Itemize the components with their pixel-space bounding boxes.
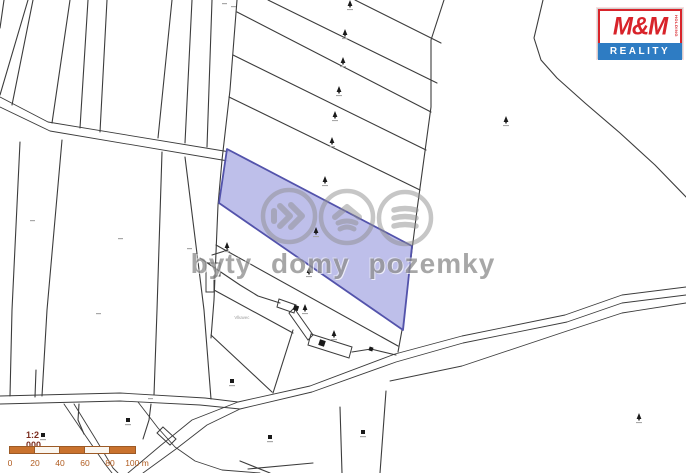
building-outline [277,299,296,313]
micro-parcel-label [229,385,235,386]
boundary-line [273,330,293,393]
micro-parcel-label [96,313,101,314]
road-edge [128,287,686,473]
survey-point-icon [126,418,130,422]
boundary-line [158,0,172,138]
scale-tick-label: 100 m [125,458,149,468]
logo-reality-text: REALITY [610,46,670,57]
mm-reality-logo: M&M HOLDING REALITY [597,8,683,59]
logo-holding-text: HOLDING [674,15,679,37]
map-screenshot: byty domy pozemky M&M HOLDING REALITY 1:… [0,0,686,473]
boundary-line [248,463,313,469]
house-icon [338,221,356,223]
scale-segment [110,447,135,453]
building-symbol [318,339,326,347]
micro-parcel-label [313,236,319,237]
house-icon [340,227,354,229]
tree-icon [348,0,353,8]
boundary-line [143,404,151,439]
micro-parcel-label [231,6,236,7]
scale-tick-label: 80 [105,458,114,468]
micro-parcel-label [30,220,35,221]
tree-icon [332,330,337,338]
scale-tick-label: 40 [55,458,64,468]
micro-parcel-label [222,3,227,4]
boundary-line [80,0,88,128]
road-edge [143,295,686,473]
boundary-line [380,391,386,473]
building-outline [308,334,352,358]
boundary-line [12,0,33,105]
scale-segment [10,447,35,453]
micro-parcel-label [322,185,328,186]
micro-parcel-label [332,120,338,121]
survey-point-icon [41,433,45,437]
building-link-line [352,349,396,355]
micro-parcel-label [148,398,153,399]
micro-parcel-label [342,38,348,39]
boundary-line [340,407,342,473]
survey-point-icon [361,430,365,434]
logo-mm-text: M&M [613,14,667,39]
boundary-line [35,370,36,397]
survey-point-icon [230,379,234,383]
scale-tick-label: 20 [30,458,39,468]
building-symbol [293,305,299,311]
scale-segment [60,447,85,453]
tree-icon [323,176,328,184]
culvert-symbol [157,427,176,445]
survey-point-icon [268,435,272,439]
micro-parcel-label [347,9,353,10]
strip-line [214,290,293,333]
micro-parcel-label [125,424,131,425]
micro-parcel-label [340,66,346,67]
road-edge [0,401,240,409]
stack-icon [394,209,416,211]
stack-icon [394,217,416,219]
tree-icon [337,86,342,94]
cadastral-map [0,0,686,473]
scale-tick-label: 0 [8,458,13,468]
road-edge [138,402,260,473]
boundary-line [100,0,107,132]
tree-icon [637,413,642,421]
tree-icon [341,57,346,65]
scale-segment [85,447,110,453]
building-symbol [368,346,373,351]
place-name-label: Vlkavec [234,315,249,320]
tree-icon [330,137,335,145]
micro-parcel-label [336,95,342,96]
micro-parcel-label [329,146,335,147]
micro-parcel-label [360,436,366,437]
tree-icon [303,304,308,312]
boundary-line [52,0,70,123]
stack-icon [394,225,416,227]
boundary-line [207,0,212,147]
watermark-text: byty domy pozemky [0,248,686,280]
path-edge [0,97,230,152]
micro-parcel-label [302,313,308,314]
tree-icon [504,116,509,124]
boundary-line [0,0,4,28]
micro-parcel-label [331,339,337,340]
tree-icon [333,111,338,119]
logo-top-panel: M&M HOLDING [598,9,682,43]
strip-line [237,12,431,112]
micro-parcel-label [503,125,509,126]
micro-parcel-label [118,238,123,239]
road-edge [390,303,686,381]
strip-line [355,0,441,43]
scale-segment [35,447,60,453]
micro-parcel-label [636,422,642,423]
scale-bar [10,447,135,453]
logo-reality-bar: REALITY [598,43,682,60]
strip-line [233,55,426,150]
tree-icon [343,29,348,37]
highlighted-parcel[interactable] [219,149,412,330]
boundary-line [185,0,192,143]
scale-tick-label: 60 [80,458,89,468]
strip-line [211,335,272,392]
micro-parcel-label [267,441,273,442]
